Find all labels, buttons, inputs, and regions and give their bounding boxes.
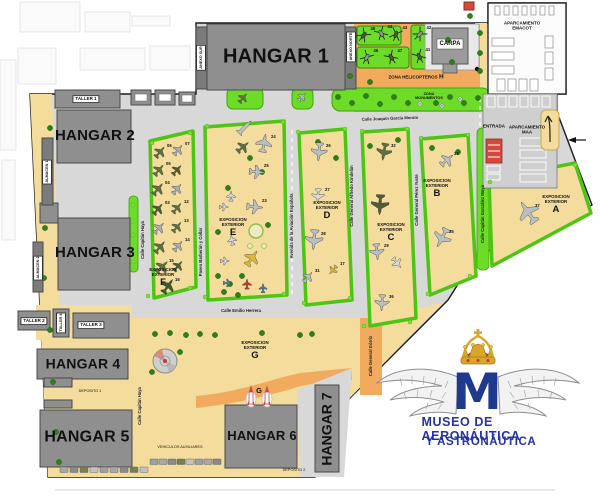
vehicle-icon bbox=[168, 459, 176, 465]
bush-icon bbox=[466, 133, 470, 137]
plane-icon bbox=[326, 263, 339, 276]
plane-icon bbox=[151, 143, 168, 161]
helicopter-number: 44 bbox=[388, 24, 393, 29]
plane-icon bbox=[312, 189, 325, 204]
plane-icon bbox=[149, 200, 166, 218]
tree-icon bbox=[475, 95, 480, 100]
plane-icon bbox=[375, 294, 390, 311]
tree-icon bbox=[41, 275, 46, 280]
helicopter-icon bbox=[355, 28, 371, 44]
bush-icon bbox=[488, 180, 492, 184]
plane-number: 35 bbox=[449, 229, 454, 234]
tree-icon bbox=[177, 349, 182, 354]
tree-icon bbox=[347, 73, 352, 78]
plane-icon bbox=[295, 90, 308, 103]
tree-icon bbox=[50, 379, 55, 384]
bush-icon bbox=[131, 260, 135, 264]
tree-icon bbox=[183, 332, 188, 337]
tree-icon bbox=[395, 137, 400, 142]
tree-icon bbox=[433, 100, 438, 105]
plane-icon bbox=[241, 247, 263, 270]
plane-icon bbox=[259, 284, 267, 293]
bush-icon bbox=[419, 136, 423, 140]
tree-icon bbox=[221, 289, 226, 294]
vehicle-icon bbox=[150, 459, 158, 465]
bush-icon bbox=[426, 292, 430, 296]
vehicle-icon bbox=[80, 467, 88, 473]
bush-icon bbox=[296, 130, 300, 134]
vehicle-icon bbox=[130, 467, 138, 473]
tree-icon bbox=[259, 330, 264, 335]
vehicle-icon bbox=[140, 467, 148, 473]
plane-icon bbox=[150, 161, 167, 179]
plane-icon bbox=[246, 199, 263, 215]
plane-number: 15 bbox=[169, 258, 174, 263]
helicopter-number: 42 bbox=[427, 25, 432, 30]
bush-icon bbox=[205, 124, 209, 128]
plane-icon bbox=[249, 165, 265, 180]
vehicle-icon bbox=[110, 467, 118, 473]
vehicle-icon bbox=[120, 467, 128, 473]
museum-map: 0607050403121314151624252326272831173229… bbox=[0, 0, 600, 503]
plane-icon bbox=[300, 269, 316, 285]
plane-number: 27 bbox=[325, 187, 330, 192]
helicopter-icon bbox=[411, 27, 427, 43]
plane-icon bbox=[236, 91, 251, 106]
plane-number: 13 bbox=[184, 218, 189, 223]
tree-icon bbox=[477, 68, 482, 73]
tree-icon bbox=[239, 273, 244, 278]
plane-number: 29 bbox=[384, 243, 389, 248]
tree-icon bbox=[47, 327, 52, 332]
helicopter-number: 41 bbox=[426, 47, 431, 52]
monument-icon bbox=[419, 103, 420, 104]
plane-icon bbox=[169, 200, 185, 216]
plane-number: 36 bbox=[389, 294, 394, 299]
vehicle-icon bbox=[90, 467, 98, 473]
map-icons-layer: 0607050403121314151624252326272831173229… bbox=[0, 0, 600, 503]
plane-number: 25 bbox=[264, 163, 269, 168]
bush-icon bbox=[343, 127, 347, 131]
tree-icon bbox=[449, 59, 454, 64]
helicopter-number: 46 bbox=[374, 48, 379, 53]
tree-icon bbox=[297, 332, 302, 337]
plane-icon bbox=[233, 138, 252, 157]
helicopter-number: 47 bbox=[398, 48, 403, 53]
plane-number: 05 bbox=[166, 161, 171, 166]
bush-icon bbox=[203, 295, 207, 299]
plane-number: 06 bbox=[167, 143, 172, 148]
tree-icon bbox=[212, 332, 217, 337]
plane-number: 28 bbox=[321, 231, 326, 236]
tree-icon bbox=[367, 143, 372, 148]
plane-icon bbox=[169, 181, 185, 197]
helicopter-number: 43 bbox=[403, 25, 408, 30]
tree-icon bbox=[235, 292, 240, 297]
plane-number: 33 bbox=[454, 151, 459, 156]
tree-icon bbox=[56, 459, 61, 464]
plane-number: 14 bbox=[185, 237, 190, 242]
bush-icon bbox=[360, 129, 364, 133]
plane-icon bbox=[169, 219, 185, 235]
tree-icon bbox=[215, 229, 220, 234]
vehicle-icon bbox=[186, 459, 194, 465]
tree-icon bbox=[167, 330, 172, 335]
plane-number: 04 bbox=[165, 180, 170, 185]
plane-icon bbox=[170, 142, 186, 158]
tree-icon bbox=[445, 37, 450, 42]
bush-icon bbox=[405, 127, 409, 131]
tree-icon bbox=[447, 94, 452, 99]
plane-icon bbox=[170, 238, 186, 254]
plane-icon bbox=[227, 191, 236, 201]
plane-icon bbox=[389, 255, 405, 271]
tree-icon bbox=[309, 331, 314, 336]
bush-icon bbox=[131, 203, 135, 207]
plane-number: 37 bbox=[535, 203, 540, 208]
tree-icon bbox=[429, 145, 434, 150]
missile-icon bbox=[236, 118, 254, 136]
bush-icon bbox=[408, 320, 412, 324]
bush-icon bbox=[362, 324, 366, 328]
vehicle-icon bbox=[195, 459, 203, 465]
bush-icon bbox=[188, 131, 192, 135]
bush-icon bbox=[131, 233, 135, 237]
tree-icon bbox=[47, 125, 52, 130]
helicopter-icon bbox=[389, 27, 403, 42]
vehicle-icon bbox=[100, 467, 108, 473]
tree-icon bbox=[391, 94, 396, 99]
monument-icon bbox=[441, 105, 442, 106]
vehicle-icon bbox=[60, 467, 68, 473]
plane-icon bbox=[220, 257, 229, 265]
plane-number: 16 bbox=[175, 277, 180, 282]
plane-icon bbox=[371, 194, 390, 215]
plane-number: 26 bbox=[326, 143, 331, 148]
tree-icon bbox=[197, 331, 202, 336]
bush-icon bbox=[468, 274, 472, 278]
plane-icon bbox=[150, 219, 167, 236]
plane-icon bbox=[227, 234, 237, 246]
tree-icon bbox=[152, 331, 157, 336]
helicopter-number: 45 bbox=[371, 26, 376, 31]
tree-icon bbox=[215, 273, 220, 278]
tree-icon bbox=[367, 79, 372, 84]
tree-icon bbox=[333, 155, 338, 160]
tree-icon bbox=[405, 100, 410, 105]
bush-icon bbox=[282, 292, 286, 296]
tree-icon bbox=[349, 100, 354, 105]
tree-icon bbox=[225, 185, 230, 190]
bush-icon bbox=[146, 294, 150, 298]
tree-icon bbox=[477, 30, 482, 35]
bush-icon bbox=[188, 286, 192, 290]
plane-icon bbox=[243, 279, 252, 289]
plane-number: 31 bbox=[315, 268, 320, 273]
plane-number: 23 bbox=[262, 198, 267, 203]
bush-icon bbox=[348, 296, 352, 300]
plane-number: 07 bbox=[185, 141, 190, 146]
tree-icon bbox=[377, 101, 382, 106]
tree-icon bbox=[247, 155, 252, 160]
bush-icon bbox=[150, 141, 154, 145]
plane-icon bbox=[369, 243, 385, 260]
plane-icon bbox=[512, 196, 543, 228]
tree-icon bbox=[335, 94, 340, 99]
plane-number: 03 bbox=[165, 200, 170, 205]
helicopter-icon bbox=[359, 50, 374, 66]
tree-icon bbox=[265, 222, 270, 227]
bush-icon bbox=[573, 163, 577, 167]
tree-icon bbox=[467, 13, 472, 18]
tree-icon bbox=[363, 93, 368, 98]
plane-number: 12 bbox=[184, 199, 189, 204]
tree-icon bbox=[149, 369, 154, 374]
bush-icon bbox=[281, 120, 285, 124]
tree-icon bbox=[44, 175, 49, 180]
vehicle-icon bbox=[177, 459, 185, 465]
tree-icon bbox=[461, 100, 466, 105]
plane-number: 17 bbox=[340, 261, 345, 266]
vehicle-icon bbox=[213, 459, 221, 465]
monument-icon bbox=[459, 98, 460, 99]
plane-icon bbox=[219, 203, 228, 211]
plane-number: 24 bbox=[271, 134, 276, 139]
vehicle-icon bbox=[70, 467, 78, 473]
plane-icon bbox=[169, 162, 185, 178]
tree-icon bbox=[42, 225, 47, 230]
tree-icon bbox=[477, 50, 482, 55]
plane-number: 32 bbox=[391, 143, 396, 148]
bush-icon bbox=[302, 301, 306, 305]
vehicle-icon bbox=[159, 459, 167, 465]
tree-icon bbox=[53, 429, 58, 434]
plane-icon bbox=[151, 238, 170, 257]
vehicle-icon bbox=[204, 459, 212, 465]
